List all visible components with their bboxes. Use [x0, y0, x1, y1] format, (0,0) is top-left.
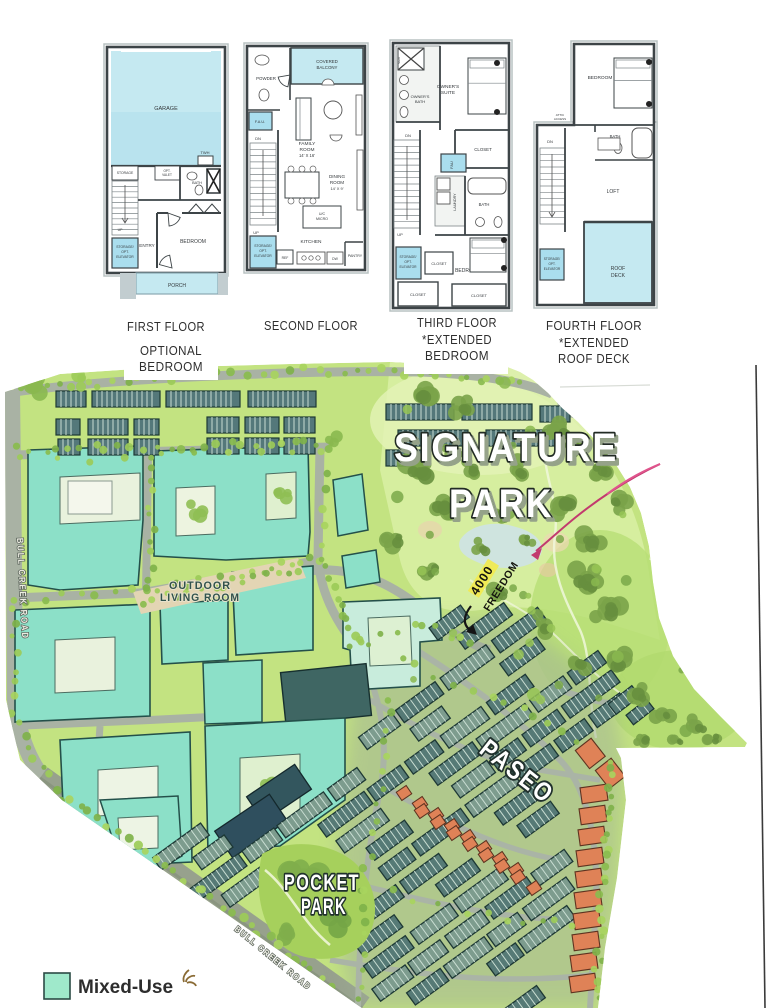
- svg-text:PANTRY: PANTRY: [348, 254, 363, 258]
- svg-text:F.A.U.: F.A.U.: [255, 120, 265, 124]
- svg-text:ACCESS: ACCESS: [554, 117, 566, 121]
- svg-text:MICRO: MICRO: [316, 217, 328, 221]
- svg-text:CLOSET: CLOSET: [431, 262, 447, 266]
- svg-text:CLOSET: CLOSET: [471, 293, 488, 298]
- svg-text:OUTDOOR: OUTDOOR: [169, 580, 231, 592]
- svg-text:BATH: BATH: [479, 202, 490, 207]
- svg-text:SEAT: SEAT: [397, 56, 401, 64]
- svg-text:BALCONY: BALCONY: [317, 65, 338, 70]
- svg-text:ROOF DECK: ROOF DECK: [558, 351, 630, 366]
- svg-text:ELEVATOR: ELEVATOR: [544, 267, 561, 271]
- svg-text:UP: UP: [397, 232, 403, 237]
- svg-text:ELEVATOR: ELEVATOR: [116, 255, 134, 259]
- svg-text:DN: DN: [405, 133, 411, 138]
- svg-text:PARK: PARK: [301, 894, 347, 919]
- svg-text:OPT.: OPT.: [259, 249, 267, 253]
- svg-text:DINING: DINING: [329, 174, 346, 179]
- svg-text:ROOF: ROOF: [611, 266, 625, 272]
- svg-text:UP: UP: [253, 230, 259, 235]
- svg-text:TWH: TWH: [200, 150, 209, 155]
- svg-text:BEDROOM: BEDROOM: [425, 348, 489, 363]
- svg-text:UP: UP: [118, 228, 124, 232]
- svg-text:U/C: U/C: [319, 212, 326, 216]
- svg-text:DW: DW: [332, 257, 338, 261]
- svg-text:OPT.: OPT.: [121, 250, 129, 254]
- svg-text:14' X 9': 14' X 9': [330, 186, 343, 191]
- svg-text:PORCH: PORCH: [168, 283, 186, 289]
- svg-text:STORAGE/: STORAGE/: [116, 245, 134, 249]
- svg-text:CLOSET: CLOSET: [474, 147, 492, 152]
- svg-text:FAU: FAU: [450, 161, 454, 169]
- svg-text:COVERED: COVERED: [316, 59, 338, 64]
- svg-text:OPT.: OPT.: [404, 260, 411, 264]
- svg-text:FIRST FLOOR: FIRST FLOOR: [127, 319, 205, 334]
- svg-text:KITCHEN: KITCHEN: [300, 239, 322, 245]
- svg-text:CLOSET: CLOSET: [410, 292, 427, 297]
- svg-text:STORAGE/: STORAGE/: [400, 255, 417, 259]
- svg-text:SIGNATURE: SIGNATURE: [394, 426, 618, 470]
- svg-text:VALET: VALET: [162, 173, 172, 177]
- svg-text:14' X 16': 14' X 16': [299, 153, 315, 158]
- svg-text:ENTRY: ENTRY: [139, 243, 155, 248]
- svg-text:PARK: PARK: [449, 482, 553, 526]
- svg-text:DN: DN: [255, 136, 261, 141]
- svg-text:DN: DN: [547, 139, 553, 144]
- svg-text:BATH: BATH: [610, 134, 621, 139]
- svg-text:REF: REF: [282, 256, 289, 260]
- svg-text:LAUNDRY: LAUNDRY: [453, 193, 457, 211]
- svg-text:*EXTENDED: *EXTENDED: [559, 335, 629, 350]
- svg-text:GARAGE: GARAGE: [154, 106, 178, 112]
- svg-text:BATH: BATH: [192, 181, 202, 185]
- svg-text:FOURTH FLOOR: FOURTH FLOOR: [546, 318, 642, 333]
- svg-text:OWNER'S: OWNER'S: [437, 84, 460, 90]
- svg-text:POWDER: POWDER: [256, 76, 276, 81]
- svg-text:STORAGE/: STORAGE/: [544, 257, 561, 261]
- svg-text:SECOND FLOOR: SECOND FLOOR: [264, 318, 358, 333]
- svg-text:BEDROOM: BEDROOM: [588, 75, 613, 81]
- svg-text:STORAGE/: STORAGE/: [254, 244, 272, 248]
- svg-text:ELEVATOR: ELEVATOR: [254, 254, 272, 258]
- svg-text:ROOM: ROOM: [330, 180, 344, 185]
- svg-text:BEDROOM: BEDROOM: [139, 359, 203, 374]
- svg-text:SUITE: SUITE: [441, 90, 455, 96]
- svg-text:STORAGE: STORAGE: [117, 171, 134, 175]
- svg-text:LOFT: LOFT: [607, 189, 620, 195]
- svg-text:Mixed-Use: Mixed-Use: [78, 977, 173, 998]
- svg-text:FAMILY: FAMILY: [299, 141, 317, 147]
- svg-text:LIVING ROOM: LIVING ROOM: [160, 592, 240, 604]
- svg-text:DECK: DECK: [611, 273, 626, 279]
- svg-text:BEDROOM: BEDROOM: [180, 239, 206, 245]
- svg-text:*EXTENDED: *EXTENDED: [422, 332, 492, 347]
- svg-text:ELEVATOR: ELEVATOR: [399, 265, 417, 269]
- svg-text:OPT.: OPT.: [548, 262, 555, 266]
- svg-text:THIRD FLOOR: THIRD FLOOR: [417, 315, 497, 330]
- svg-text:POCKET: POCKET: [284, 870, 360, 895]
- svg-text:BATH: BATH: [415, 99, 425, 104]
- svg-text:OPTIONAL: OPTIONAL: [140, 343, 202, 358]
